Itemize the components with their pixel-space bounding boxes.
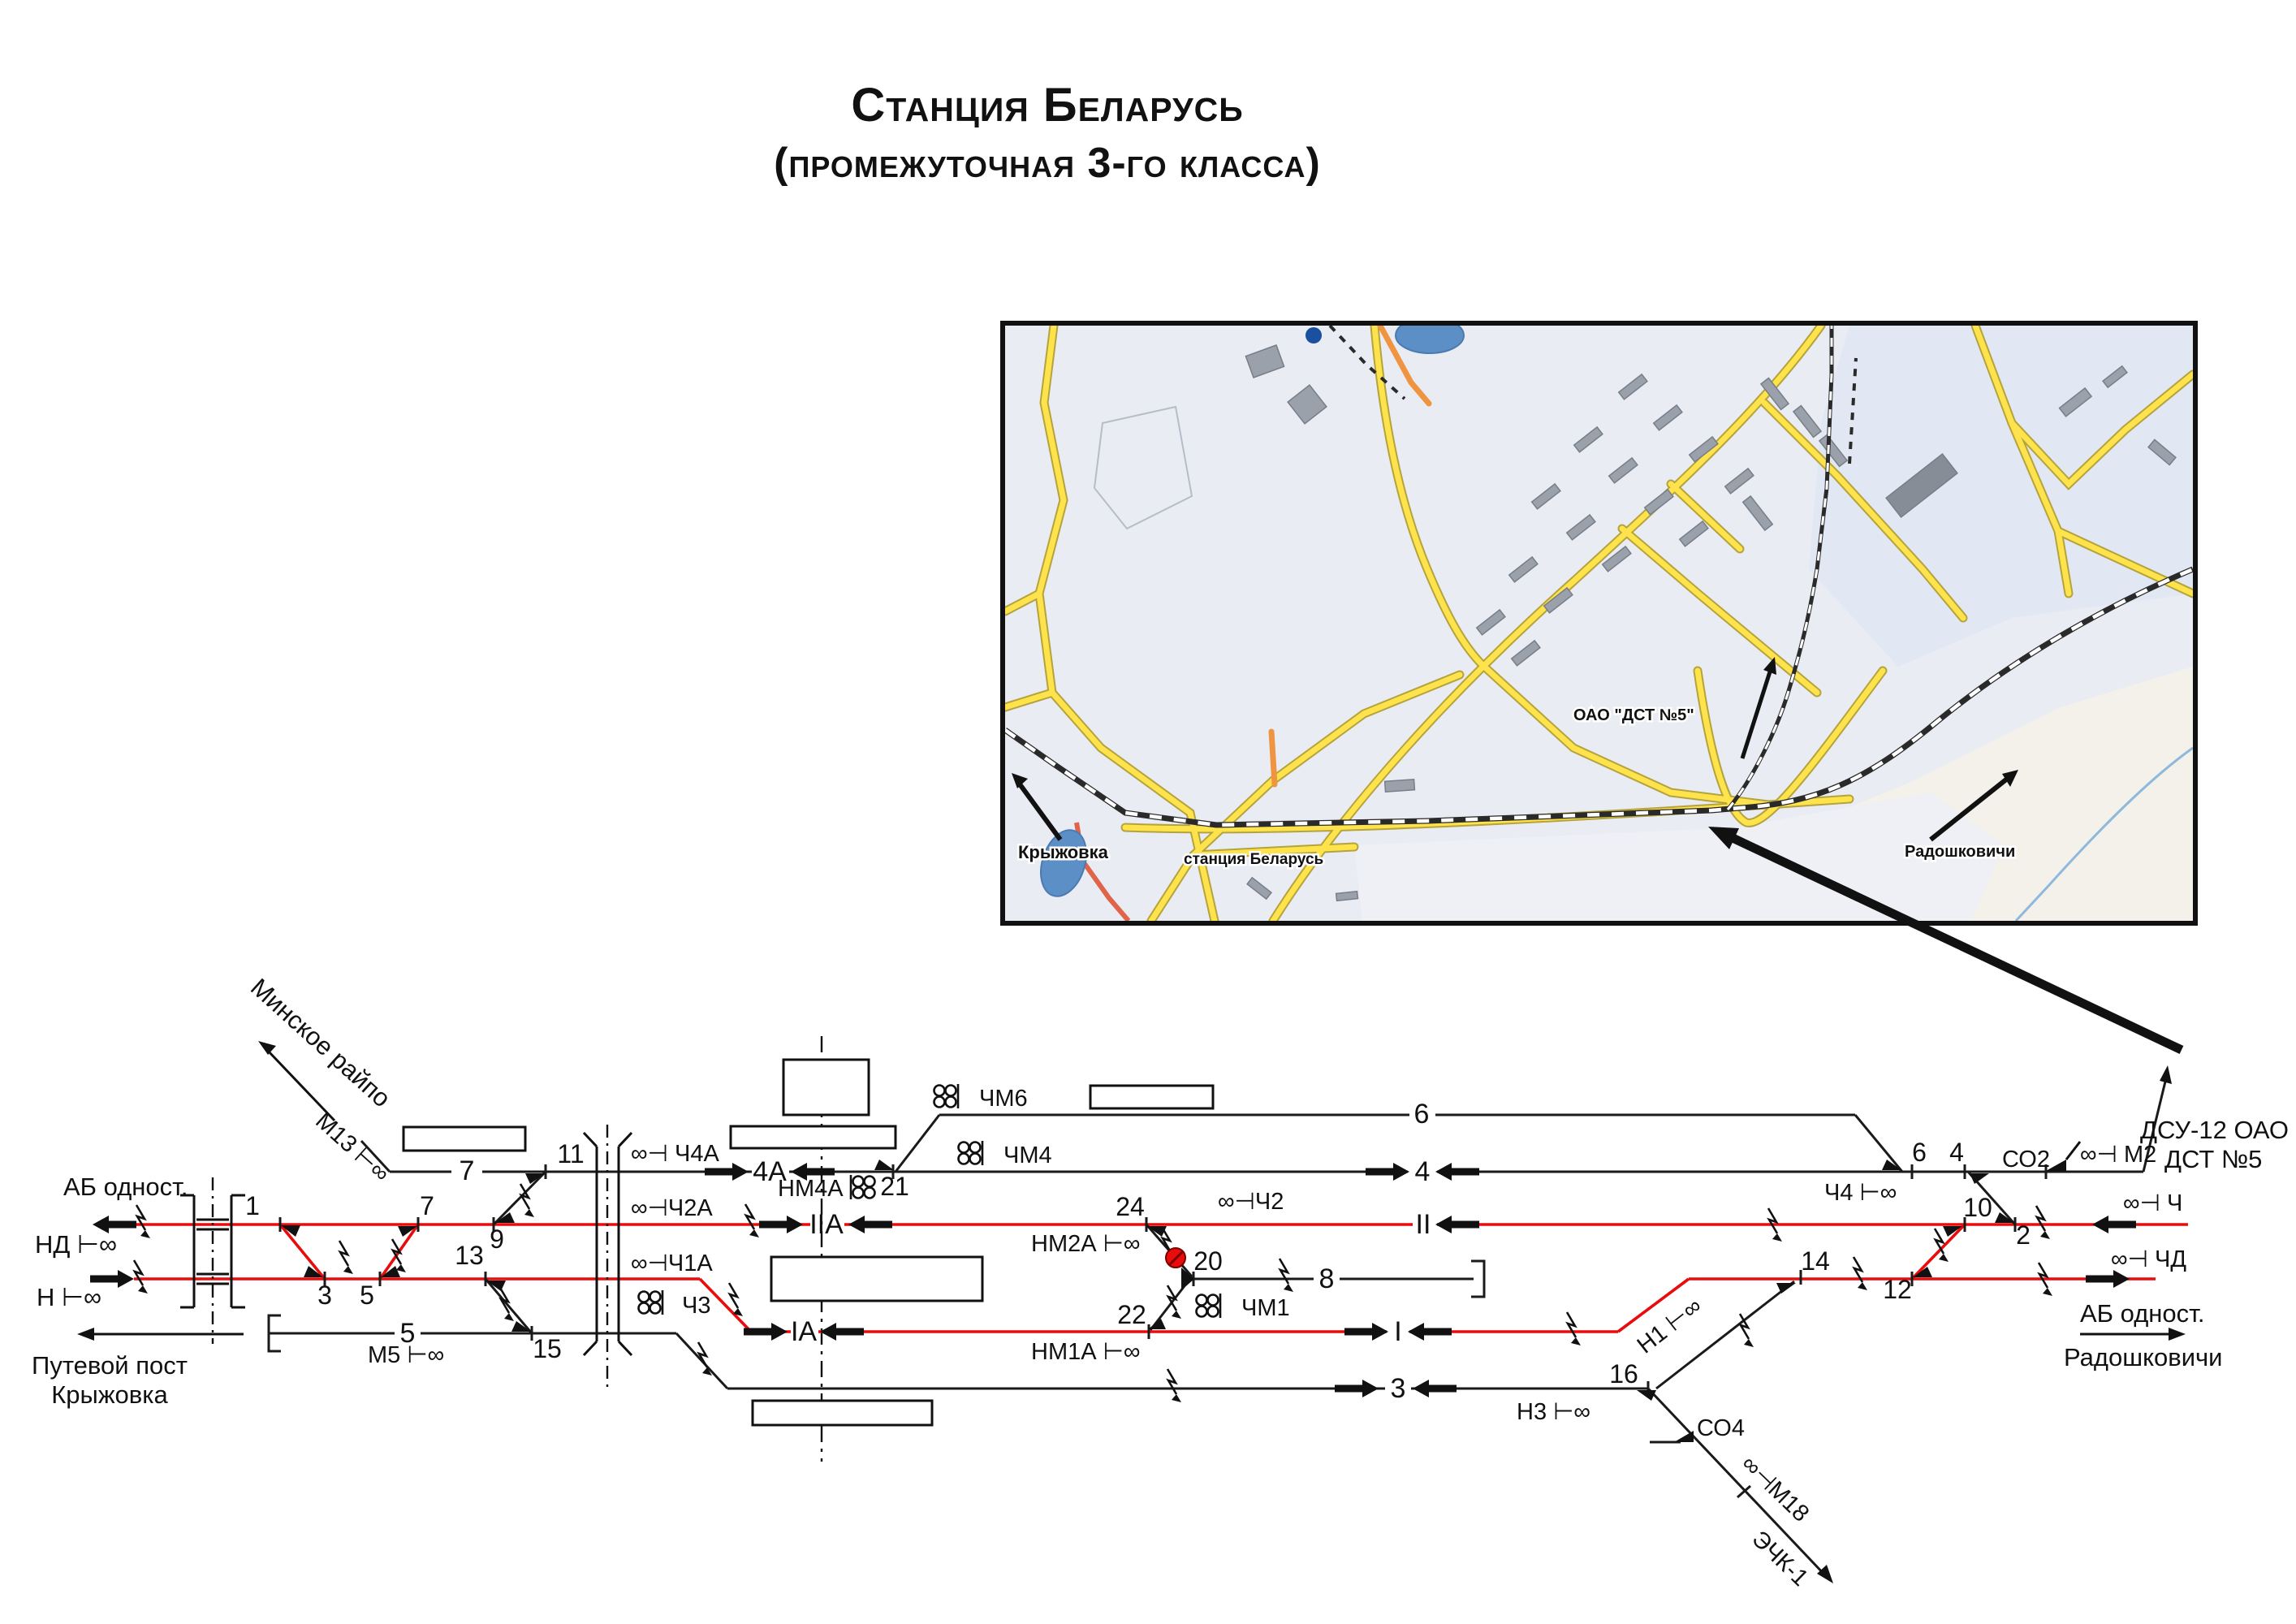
signal-ch2: ∞⊣Ч2 <box>1218 1189 1284 1215</box>
shunt-signal-icon <box>934 1084 959 1108</box>
arrow-right-icon <box>2169 1328 2186 1341</box>
signal-nm1a: НМ1А ⊢∞ <box>1031 1339 1141 1365</box>
turnout-number: 1 <box>245 1191 260 1220</box>
turnout-number: 4 <box>1949 1138 1964 1167</box>
left-nd-signal: НД ⊢∞ <box>35 1230 117 1259</box>
track-number-2: II <box>1416 1209 1431 1240</box>
bond-arrow-icon <box>136 1205 150 1238</box>
turnout-number: 12 <box>1883 1275 1912 1304</box>
signal-echk: ЭЧК-1 <box>1746 1526 1813 1592</box>
building <box>771 1257 982 1301</box>
track-number-3: 3 <box>1391 1373 1406 1404</box>
signal-so4: СО4 <box>1697 1415 1745 1441</box>
turnout-number: 11 <box>557 1139 584 1168</box>
signal-chd: ∞⊣ ЧД <box>2111 1246 2186 1272</box>
signal-ch4a: ∞⊣ Ч4А <box>631 1141 719 1167</box>
dsu-label-line1: ДСУ-12 ОАО <box>2140 1116 2289 1144</box>
red-dot-marker <box>1166 1248 1185 1268</box>
dsu-arrow-icon <box>2160 1065 2172 1084</box>
signal-ch1a: ∞⊣Ч1А <box>631 1250 713 1276</box>
track-number-1a: IА <box>791 1316 817 1347</box>
turnout-number: 16 <box>1609 1359 1638 1389</box>
turnout-number: 2 <box>2016 1220 2031 1250</box>
turnout-number: 7 <box>420 1191 434 1220</box>
platform <box>1090 1086 1213 1108</box>
left-post-line1: Путевой пост <box>32 1351 188 1380</box>
signal-chm1: ЧМ1 <box>1241 1295 1290 1321</box>
platform <box>731 1126 896 1148</box>
signal-labels: ∞⊣ Ч4А ∞⊣Ч2А ∞⊣Ч1А Ч3 НМ4А ЧМ6 ЧМ4 ЧМ1 ∞… <box>310 1086 2186 1592</box>
right-dest-label: Радошковичи <box>2064 1343 2223 1371</box>
page: Станция Беларусь (промежуточная 3-го кла… <box>0 0 2296 1624</box>
signal-m5: М5 ⊢∞ <box>368 1342 444 1368</box>
track-number-8: 8 <box>1319 1263 1335 1294</box>
turnout-number: 3 <box>317 1281 332 1310</box>
dsu-label-line2: ДСТ №5 <box>2164 1145 2262 1173</box>
signal-ch: ∞⊣ Ч <box>2123 1190 2182 1216</box>
turnout-number: 20 <box>1193 1246 1223 1276</box>
signal-so2-mast <box>2066 1142 2080 1160</box>
platform <box>404 1127 525 1151</box>
shunt-signal-icon <box>851 1175 875 1199</box>
track-number-4: 4 <box>1415 1156 1431 1187</box>
turnout-number: 5 <box>360 1281 374 1310</box>
signal-chm4: ЧМ4 <box>1003 1142 1052 1168</box>
left-ab-label: АБ одност. <box>63 1173 188 1201</box>
shunt-signal-icon <box>1197 1294 1221 1318</box>
turnout-number: 10 <box>1963 1193 1992 1222</box>
turnout-number: 9 <box>490 1224 504 1254</box>
minsk-arrow-icon <box>258 1041 276 1055</box>
signal-n1: Н1 ⊢∞ <box>1633 1293 1707 1358</box>
track-schematic: 7 5 4А IIА IА 6 4 II 8 I 3 1 3 5 7 9 11 … <box>0 0 2296 1624</box>
signal-n3: Н3 ⊢∞ <box>1517 1399 1590 1425</box>
signal-chm6: ЧМ6 <box>979 1086 1028 1112</box>
signal-ch3: Ч3 <box>682 1293 710 1319</box>
left-n-signal: Н ⊢∞ <box>37 1283 101 1311</box>
turnout-number: 21 <box>880 1172 909 1201</box>
side-tracks <box>269 1082 2165 1575</box>
overpass-icon <box>584 1125 632 1393</box>
signal-m2: ∞⊣ М2 <box>2080 1142 2156 1168</box>
turnout-number: 22 <box>1117 1300 1146 1329</box>
arrow-left-icon <box>77 1328 94 1341</box>
signal-m13: М13 ⊢∞ <box>310 1108 394 1187</box>
right-ab-label: АБ одност. <box>2080 1299 2205 1328</box>
signal-nm2a: НМ2А ⊢∞ <box>1031 1231 1141 1257</box>
signal-so2: СО2 <box>2002 1147 2050 1173</box>
turnout-number: 14 <box>1801 1246 1830 1276</box>
platform <box>753 1401 932 1425</box>
track-number-7: 7 <box>460 1155 475 1186</box>
track-number-6: 6 <box>1414 1099 1430 1129</box>
track-number-1: I <box>1394 1316 1401 1347</box>
track-number-2a: IIА <box>809 1209 844 1240</box>
turnout-number: 13 <box>455 1241 484 1270</box>
turnout-number: 6 <box>1912 1138 1927 1167</box>
map-link-arrow <box>1708 827 2182 1050</box>
minsk-direction-label: Минское райпо <box>245 973 396 1112</box>
signal-ch4: Ч4 ⊢∞ <box>1824 1180 1897 1206</box>
shunt-signal-icon <box>639 1290 663 1315</box>
station-boundary-icon <box>180 1177 245 1344</box>
shunt-signal-icon <box>959 1141 983 1165</box>
turnout-number: 24 <box>1116 1192 1145 1221</box>
station-building <box>783 1060 869 1115</box>
signal-ch2a: ∞⊣Ч2А <box>631 1195 713 1221</box>
turnout-number: 15 <box>533 1334 562 1363</box>
signal-nm4a: НМ4А <box>778 1176 844 1202</box>
map-link-arrowhead-icon <box>1708 827 1739 849</box>
left-post-line2: Крыжовка <box>51 1380 168 1409</box>
